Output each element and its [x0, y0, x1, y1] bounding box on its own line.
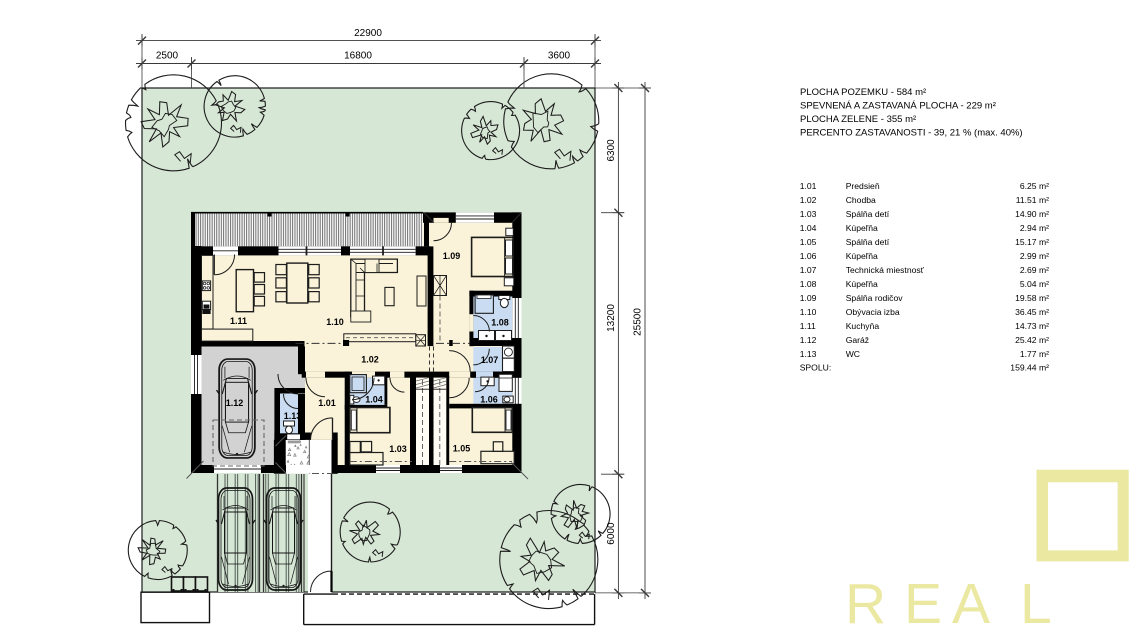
svg-text:2.69 m²: 2.69 m² — [1020, 265, 1049, 275]
svg-text:WC: WC — [846, 349, 860, 359]
svg-text:Spálňa rodičov: Spálňa rodičov — [846, 293, 904, 303]
svg-text:PLOCHA ZELENE - 355 m²: PLOCHA ZELENE - 355 m² — [800, 114, 916, 125]
svg-text:159.44 m²: 159.44 m² — [1010, 363, 1049, 373]
svg-text:1.08: 1.08 — [491, 318, 509, 328]
svg-text:6000: 6000 — [606, 522, 617, 545]
svg-text:5.04 m²: 5.04 m² — [1020, 279, 1049, 289]
svg-text:2.99 m²: 2.99 m² — [1020, 251, 1049, 261]
svg-text:Technická miestnosť: Technická miestnosť — [846, 265, 925, 275]
svg-text:1.01: 1.01 — [800, 181, 817, 191]
svg-text:SPOLU:: SPOLU: — [800, 363, 832, 373]
svg-text:2.94 m²: 2.94 m² — [1020, 223, 1049, 233]
svg-text:Obývacia izba: Obývacia izba — [846, 307, 900, 317]
svg-text:1.12: 1.12 — [226, 398, 244, 408]
svg-text:6300: 6300 — [606, 139, 617, 162]
svg-text:PLOCHA POZEMKU - 584 m²: PLOCHA POZEMKU - 584 m² — [800, 87, 926, 98]
svg-text:A: A — [952, 572, 990, 631]
svg-text:36.45 m²: 36.45 m² — [1015, 307, 1049, 317]
svg-text:1.77 m²: 1.77 m² — [1020, 349, 1049, 359]
svg-text:Spálňa detí: Spálňa detí — [846, 237, 890, 247]
svg-text:1.13: 1.13 — [800, 349, 817, 359]
svg-text:1.09: 1.09 — [443, 251, 461, 261]
svg-text:25.42 m²: 25.42 m² — [1015, 335, 1049, 345]
svg-text:1.07: 1.07 — [800, 265, 817, 275]
svg-text:R: R — [845, 572, 886, 631]
svg-text:SPEVNENÁ A ZASTAVANÁ PLOCHA -: SPEVNENÁ A ZASTAVANÁ PLOCHA - 229 m² — [800, 100, 996, 111]
svg-text:1.03: 1.03 — [800, 209, 817, 219]
svg-text:1.04: 1.04 — [800, 223, 817, 233]
svg-text:22900: 22900 — [354, 28, 382, 39]
svg-text:Kúpeľňa: Kúpeľňa — [846, 279, 878, 289]
svg-text:15.17 m²: 15.17 m² — [1015, 237, 1049, 247]
svg-text:Garáž: Garáž — [846, 335, 869, 345]
svg-text:1.12: 1.12 — [800, 335, 817, 345]
svg-text:6.25 m²: 6.25 m² — [1020, 181, 1049, 191]
svg-text:14.73 m²: 14.73 m² — [1015, 321, 1049, 331]
svg-text:1.03: 1.03 — [389, 444, 407, 454]
svg-text:3600: 3600 — [548, 51, 571, 62]
svg-text:1.06: 1.06 — [480, 395, 498, 405]
svg-text:L: L — [1020, 572, 1052, 631]
svg-text:PERCENTO ZASTAVANOSTI - 39, 21: PERCENTO ZASTAVANOSTI - 39, 21 % (max. 4… — [800, 127, 1023, 138]
svg-text:11.51 m²: 11.51 m² — [1016, 195, 1049, 205]
svg-text:1.08: 1.08 — [800, 279, 817, 289]
svg-text:1.09: 1.09 — [800, 293, 817, 303]
svg-text:1.13: 1.13 — [284, 411, 302, 421]
svg-text:2500: 2500 — [156, 51, 179, 62]
svg-text:Kúpeľňa: Kúpeľňa — [846, 251, 878, 261]
svg-text:1.06: 1.06 — [800, 251, 817, 261]
svg-text:Spálňa detí: Spálňa detí — [846, 209, 890, 219]
svg-text:13200: 13200 — [606, 304, 617, 332]
svg-text:Chodba: Chodba — [846, 195, 876, 205]
svg-text:25500: 25500 — [633, 308, 644, 336]
svg-text:1.11: 1.11 — [230, 316, 247, 326]
svg-text:1.02: 1.02 — [361, 355, 379, 365]
svg-text:1.07: 1.07 — [481, 355, 499, 365]
svg-text:1.02: 1.02 — [800, 195, 817, 205]
svg-text:1.10: 1.10 — [326, 317, 344, 327]
svg-text:1.10: 1.10 — [800, 307, 817, 317]
svg-text:14.90 m²: 14.90 m² — [1015, 209, 1049, 219]
svg-text:Kúpeľňa: Kúpeľňa — [846, 223, 878, 233]
svg-text:16800: 16800 — [344, 51, 372, 62]
svg-text:Predsieň: Predsieň — [846, 181, 880, 191]
svg-text:1.01: 1.01 — [318, 398, 336, 408]
svg-text:1.05: 1.05 — [800, 237, 817, 247]
svg-text:E: E — [904, 572, 942, 631]
svg-text:1.04: 1.04 — [365, 395, 383, 405]
svg-text:Kuchyňa: Kuchyňa — [846, 321, 880, 331]
svg-text:1.11: 1.11 — [800, 321, 816, 331]
svg-text:1.05: 1.05 — [453, 444, 471, 454]
svg-text:19.58 m²: 19.58 m² — [1015, 293, 1049, 303]
